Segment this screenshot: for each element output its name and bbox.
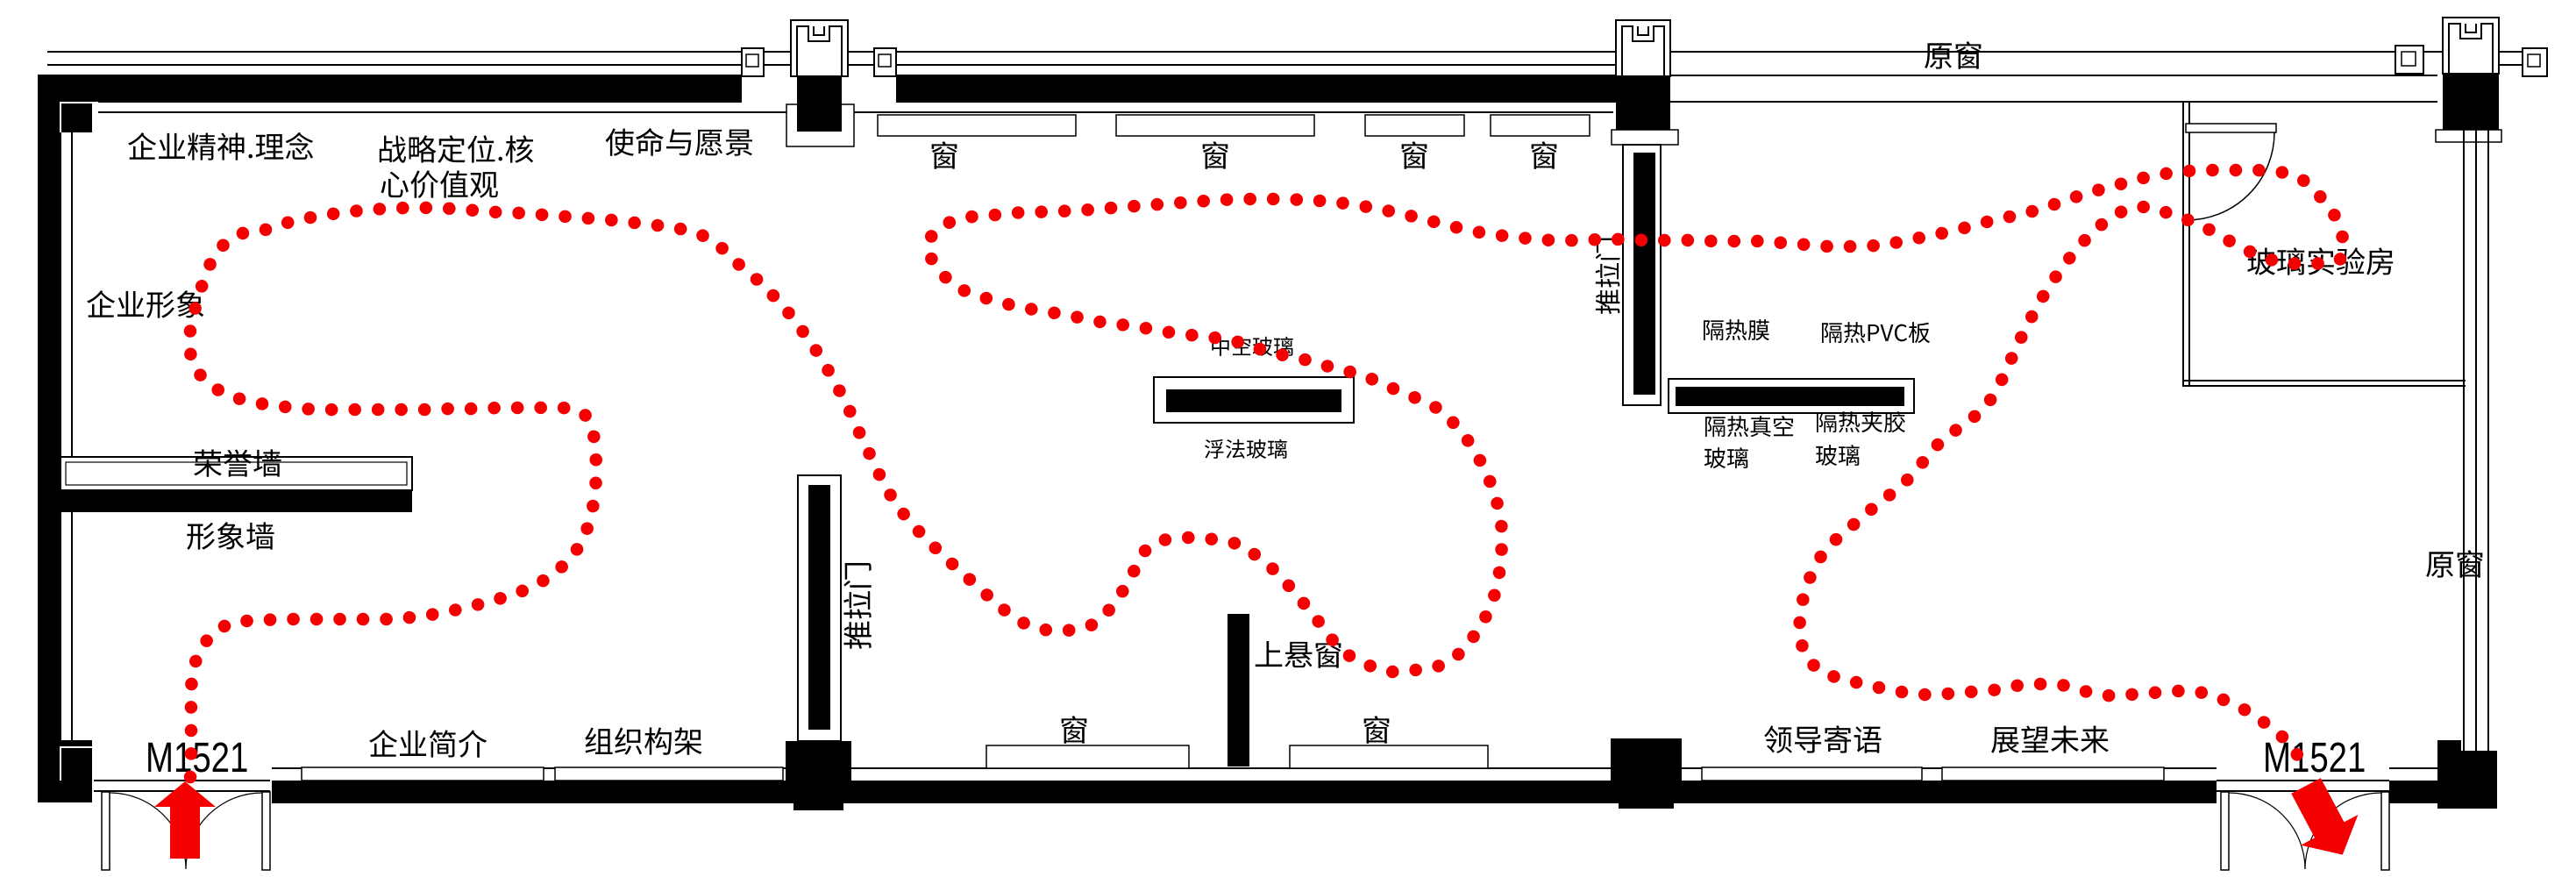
svg-text:M1521: M1521 (146, 735, 248, 781)
svg-text:M1521: M1521 (2263, 735, 2366, 781)
